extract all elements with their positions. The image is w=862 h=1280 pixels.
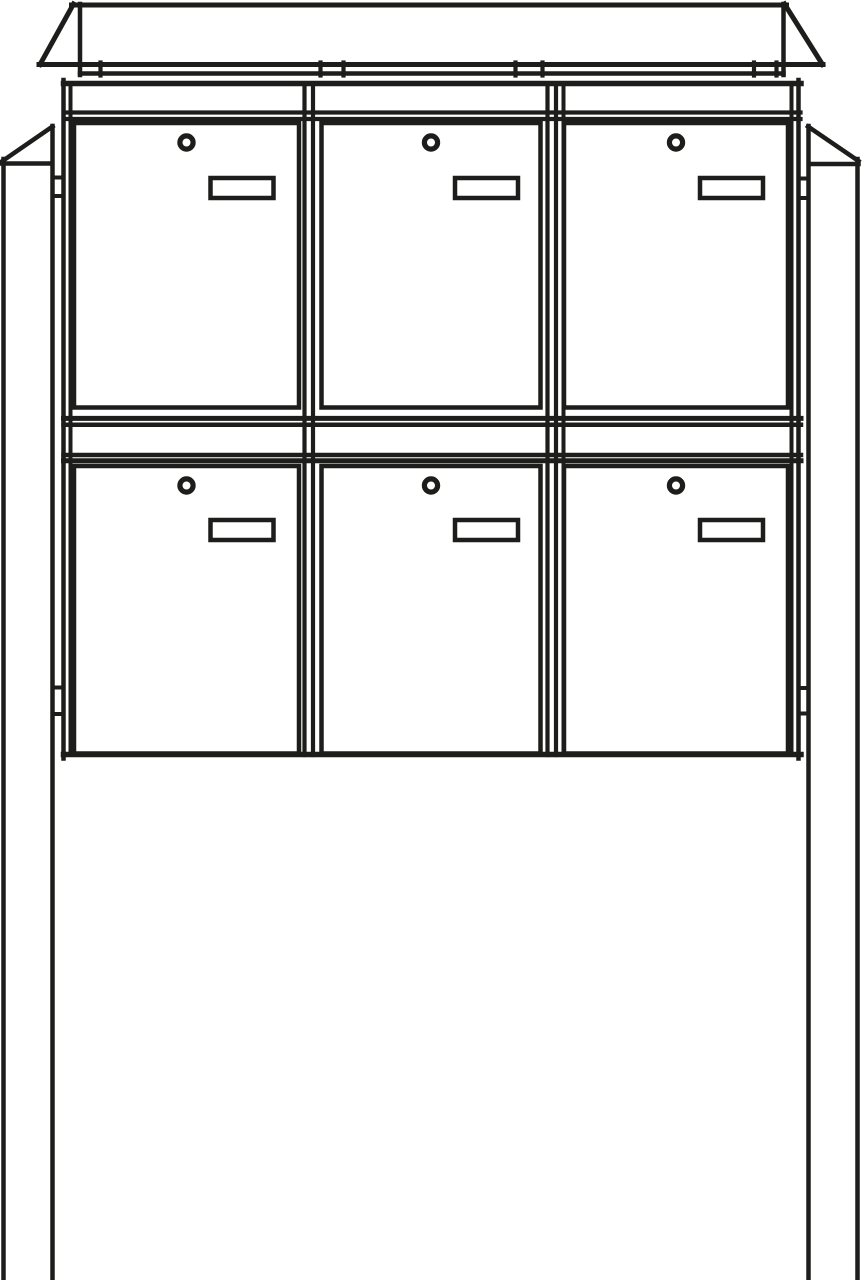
drawing-stage [0, 0, 862, 1280]
door-6-bottom-right [564, 466, 788, 754]
mailbox-unit-drawing [0, 0, 862, 1280]
door-6-nameplate [700, 520, 763, 540]
door-3-nameplate [700, 178, 763, 198]
door-4-nameplate [211, 520, 274, 540]
door-2-nameplate [455, 178, 518, 198]
door-5-nameplate [455, 520, 518, 540]
door-4-bottom-left [74, 466, 299, 754]
door-1-nameplate [211, 178, 274, 198]
door-2-top-middle [322, 123, 541, 408]
roof-left-slope [40, 4, 74, 65]
door-3-top-right [564, 123, 788, 408]
door-5-bottom-middle [322, 466, 541, 754]
right-post-top-slope [808, 127, 859, 162]
left-post-top-slope [3, 127, 53, 162]
roof-right-slope [785, 4, 823, 65]
door-1-top-left [74, 123, 299, 408]
